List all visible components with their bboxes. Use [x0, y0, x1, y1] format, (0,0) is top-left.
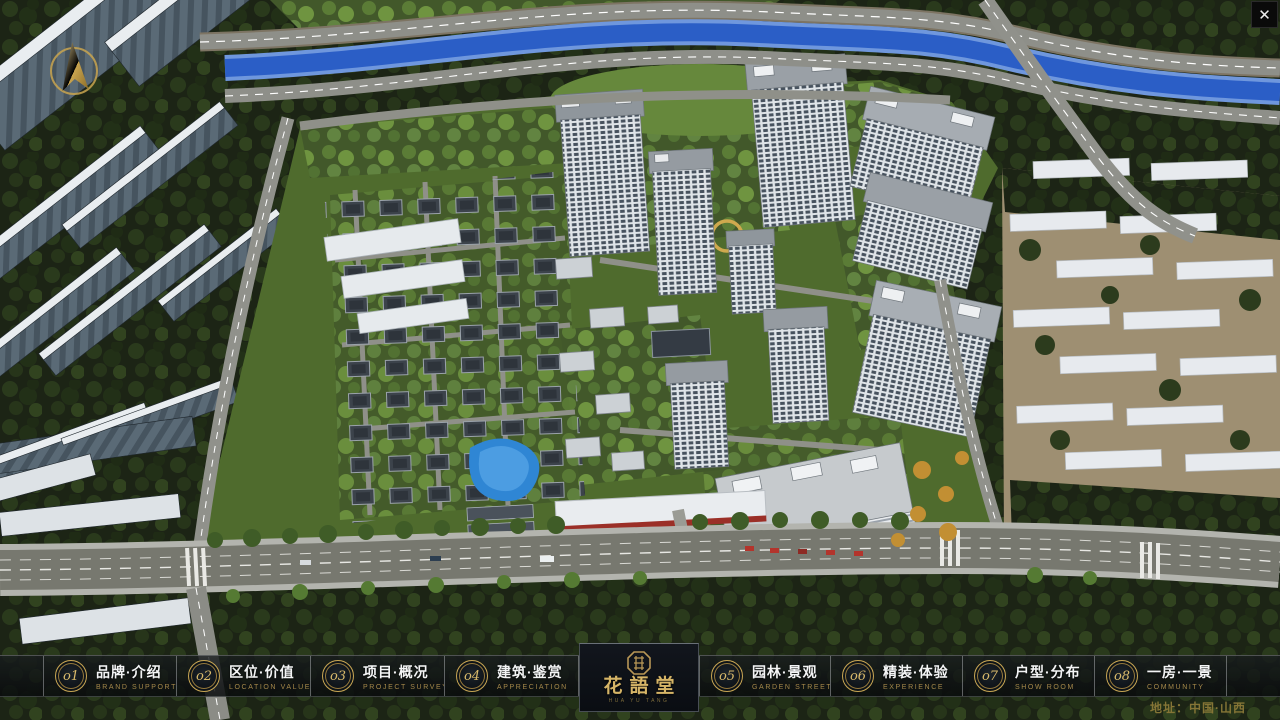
brand-logotype-latin: HUA YU TANG: [609, 698, 670, 704]
menubar-spacer: [0, 656, 43, 696]
menu-number-badge: o8: [1106, 660, 1138, 692]
menu-title: 建筑·鉴赏: [497, 662, 568, 682]
seal-stamp-icon: [627, 651, 651, 675]
menu-title: 品牌·介绍: [96, 662, 176, 682]
menu-item-architecture[interactable]: o4 建筑·鉴赏 APPRECIATION: [445, 656, 579, 696]
menu-number-badge: o3: [322, 660, 354, 692]
menu-subtitle: BRAND SUPPORT: [96, 684, 176, 691]
menu-item-views[interactable]: o8 一房·一景 COMMUNITY: [1095, 656, 1227, 696]
menu-number-badge: o4: [456, 660, 488, 692]
menu-title: 项目·概况: [363, 662, 444, 682]
menu-number-badge: o1: [55, 660, 87, 692]
menu-item-brand[interactable]: o1 品牌·介绍 BRAND SUPPORT: [43, 656, 177, 696]
menu-item-location[interactable]: o2 区位·价值 LOCATION VALUE: [177, 656, 311, 696]
menu-number-badge: o5: [711, 660, 743, 692]
close-icon: ✕: [1258, 6, 1271, 24]
menu-subtitle: APPRECIATION: [497, 684, 568, 691]
menu-number-badge: o7: [974, 660, 1006, 692]
menu-item-landscape[interactable]: o5 园林·景观 GARDEN STREET: [699, 656, 831, 696]
menu-title: 精装·体验: [883, 662, 949, 682]
brand-home-panel[interactable]: 花語堂 HUA YU TANG: [579, 643, 699, 712]
menu-title: 园林·景观: [752, 662, 830, 682]
menu-subtitle: LOCATION VALUE: [229, 684, 310, 691]
menu-item-project[interactable]: o3 项目·概况 PROJECT SURVEY: [311, 656, 445, 696]
menu-number-badge: o6: [842, 660, 874, 692]
menu-title: 户型·分布: [1015, 662, 1081, 682]
close-button[interactable]: ✕: [1251, 1, 1278, 28]
compass-north-icon: [44, 38, 104, 100]
masterplan-3d-viewport[interactable]: [0, 0, 1280, 720]
menu-item-floorplan[interactable]: o7 户型·分布 SHOW ROOM: [963, 656, 1095, 696]
menu-subtitle: PROJECT SURVEY: [363, 684, 444, 691]
menu-item-interior[interactable]: o6 精装·体验 EXPERIENCE: [831, 656, 963, 696]
menu-subtitle: SHOW ROOM: [1015, 684, 1081, 691]
presentation-window: ✕ o1 品牌·介绍 BRAND SUPPORT o2 区位·价值 LOCATI…: [0, 0, 1280, 720]
brand-logotype: 花語堂: [596, 676, 681, 696]
menu-subtitle: EXPERIENCE: [883, 684, 949, 691]
project-address: 地址：中国·山西: [1150, 699, 1246, 716]
menubar-spacer: [1227, 656, 1280, 696]
menu-subtitle: COMMUNITY: [1147, 684, 1213, 691]
menu-number-badge: o2: [188, 660, 220, 692]
menu-subtitle: GARDEN STREET: [752, 684, 830, 691]
menu-title: 一房·一景: [1147, 662, 1213, 682]
menu-title: 区位·价值: [229, 662, 310, 682]
